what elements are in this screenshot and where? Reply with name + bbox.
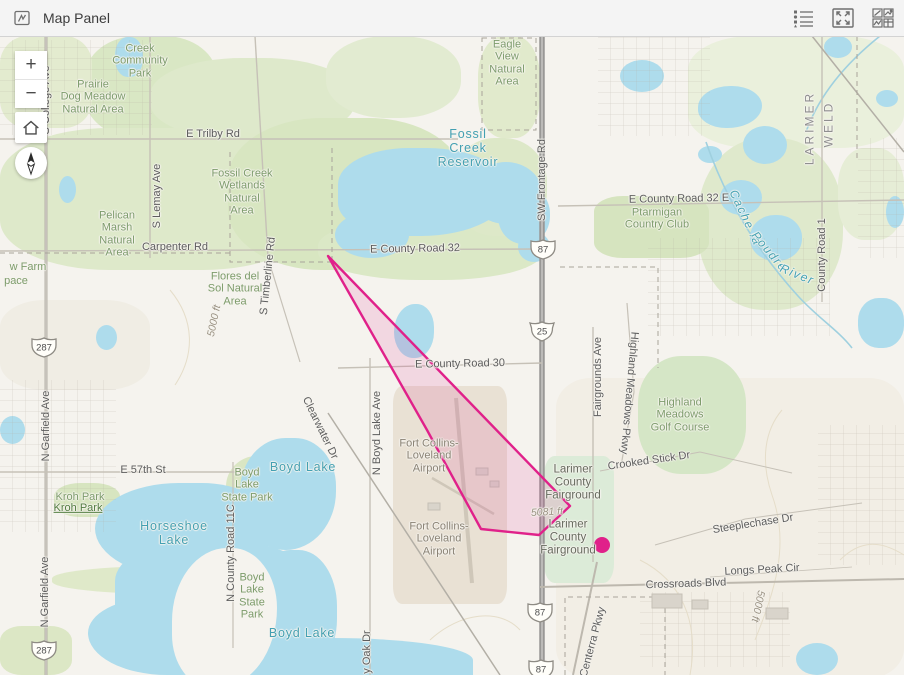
drawn-polygon-graphic[interactable] bbox=[328, 256, 570, 535]
road bbox=[573, 562, 597, 675]
roads-and-graphics-layer bbox=[0, 0, 904, 675]
contour-line bbox=[640, 560, 693, 675]
legend-icon[interactable] bbox=[790, 5, 816, 31]
stream-line bbox=[706, 142, 852, 348]
contour-line bbox=[840, 544, 904, 560]
header-actions bbox=[790, 0, 896, 36]
map-canvas[interactable]: Creek Community ParkPrairie Dog Meadow N… bbox=[0, 0, 904, 675]
road bbox=[621, 392, 634, 466]
road bbox=[627, 303, 634, 392]
compass-needle-icon bbox=[20, 150, 42, 176]
map-panel-icon bbox=[14, 10, 31, 27]
fullscreen-icon[interactable] bbox=[830, 5, 856, 31]
road bbox=[268, 258, 300, 362]
compass-button[interactable] bbox=[15, 147, 47, 179]
road bbox=[540, 579, 904, 587]
boundary-dashed bbox=[230, 152, 332, 262]
zoom-control: + − bbox=[15, 51, 47, 108]
road bbox=[600, 452, 700, 471]
building bbox=[428, 503, 440, 510]
contour-line bbox=[170, 290, 189, 385]
home-button[interactable] bbox=[15, 112, 47, 143]
widget-grid-icon[interactable] bbox=[870, 5, 896, 31]
panel-header: Map Panel bbox=[0, 0, 904, 37]
contour-line bbox=[755, 410, 782, 640]
point-graphic[interactable] bbox=[594, 537, 610, 553]
road bbox=[0, 249, 540, 251]
road bbox=[338, 363, 542, 368]
building bbox=[692, 600, 708, 609]
building bbox=[652, 594, 682, 608]
building bbox=[766, 608, 788, 619]
boundary-dashed bbox=[565, 597, 665, 675]
road bbox=[710, 567, 852, 577]
boundary-dashed bbox=[560, 267, 658, 368]
home-icon bbox=[20, 117, 42, 139]
zoom-in-button[interactable]: + bbox=[15, 51, 47, 79]
road bbox=[700, 452, 792, 473]
road bbox=[255, 36, 268, 258]
road bbox=[745, 503, 862, 519]
stream-line bbox=[806, 36, 880, 132]
zoom-out-button[interactable]: − bbox=[15, 80, 47, 108]
boundary-dashed bbox=[482, 38, 536, 130]
road bbox=[655, 519, 745, 545]
map-panel-app: Creek Community ParkPrairie Dog Meadow N… bbox=[0, 0, 904, 675]
panel-title: Map Panel bbox=[43, 10, 110, 26]
